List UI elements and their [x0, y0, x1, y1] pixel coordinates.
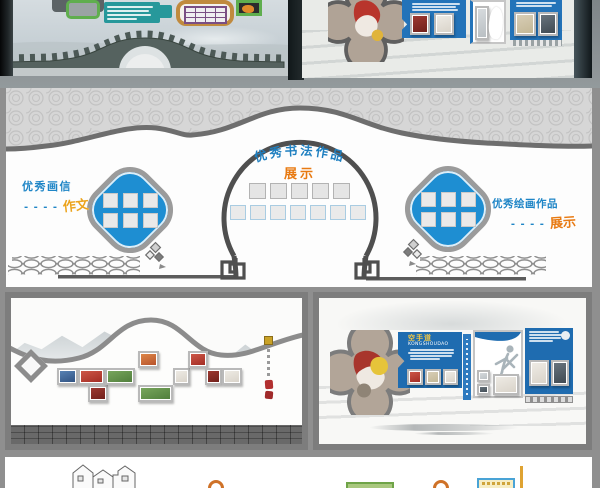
kick-display-panel [473, 330, 523, 398]
photo-thumb [407, 369, 423, 385]
photo-thumb [105, 368, 135, 385]
orange-pole [520, 466, 523, 488]
karate-title: 空手道 [408, 335, 462, 342]
text-line [410, 358, 440, 360]
text-line [516, 2, 556, 4]
picture-frame-right-edge [574, 0, 592, 78]
picture-frame-left-edge [0, 0, 13, 76]
ink-brush-stroke [369, 424, 519, 431]
text-line [529, 340, 553, 342]
green-board [346, 482, 394, 488]
left-section-label: 优秀画信 - - - - 作文 [22, 180, 89, 215]
display-frame [291, 183, 308, 199]
display-frame [270, 205, 286, 220]
display-frame [290, 205, 306, 220]
photo-thumb [88, 385, 108, 402]
label-word: 作文 [62, 197, 90, 216]
main-wall-design-panel: 优秀书法作品 展示 优秀画信 - - - - [6, 88, 592, 287]
display-frame [330, 205, 346, 220]
teal-small-board [158, 5, 172, 18]
stone-bridge-icon [0, 18, 290, 76]
photo-thumb [78, 368, 105, 385]
photo-thumb [425, 369, 441, 385]
photo-thumb [551, 360, 569, 386]
film-perforation-strip [510, 40, 562, 46]
photo-thumb [205, 368, 222, 385]
text-line [410, 349, 454, 351]
photo-slot-grid [415, 176, 481, 242]
preview-bridge-wall [0, 0, 290, 76]
green-cartoon-box [236, 0, 262, 16]
text-line [412, 3, 460, 5]
display-frame [250, 205, 266, 220]
green-frame-box [66, 0, 100, 19]
label-line2: - - - - 作文 [24, 195, 89, 215]
display-frame [270, 183, 287, 199]
bottom-partial-preview [5, 457, 592, 488]
red-seal-marks [265, 391, 274, 400]
village-houses-sketch [71, 461, 141, 488]
photo-thumb [57, 368, 78, 385]
text-line [529, 331, 559, 333]
stamp-perforation-row [525, 396, 573, 403]
cutout-figure [487, 6, 505, 40]
text-line [412, 6, 456, 8]
photo-thumb [529, 360, 549, 386]
karate-banner: 空手道 KONGSHOUDAO [398, 332, 462, 388]
text-line [408, 352, 454, 354]
brick-base [11, 425, 302, 444]
orange-circle-ornament [433, 480, 449, 488]
quatrefoil-photo-frame [328, 0, 404, 62]
ink-brush-stroke [414, 432, 494, 435]
vertical-text-marks [466, 339, 468, 395]
text-line [412, 9, 458, 11]
vertical-calligraphy [263, 336, 275, 402]
karate-subtitle: KONGSHOUDAO [408, 342, 462, 347]
text-line [410, 355, 452, 357]
photo-thumb [188, 351, 208, 368]
label-line1: 优秀绘画作品 [492, 198, 590, 211]
text-dashes [482, 482, 510, 485]
label-word: 展示 [549, 215, 576, 233]
orange-circle-ornament [208, 480, 224, 488]
display-frame [350, 205, 366, 220]
karate-panel-right [525, 328, 573, 394]
calligraphy-subtitle: 展示 [276, 167, 324, 183]
text-line [107, 6, 153, 8]
photo-thumb [514, 12, 536, 36]
cartoon-blob [242, 5, 254, 13]
photo-thumb [138, 385, 173, 402]
label-dashes: - - - - [24, 202, 58, 213]
display-frame [333, 183, 350, 199]
text-line [516, 5, 552, 7]
photo-thumb [173, 368, 190, 385]
label-dashes: - - - - [511, 219, 545, 230]
photo-thumb [477, 370, 490, 382]
display-frame [312, 183, 329, 199]
text-line [107, 10, 149, 12]
preview-karate-wall-top [302, 0, 592, 78]
label-line1: 优秀画信 [22, 180, 89, 194]
text-line [529, 334, 563, 336]
display-frame [310, 205, 326, 220]
photo-thumb [538, 12, 558, 36]
label-line2: - - - - 展示 [492, 212, 590, 232]
photo-thumb [434, 13, 454, 35]
diamond-ornament-left [146, 243, 166, 269]
diamond-ornament-right [404, 240, 421, 266]
preview-sports-photo-wall [5, 292, 308, 450]
photo-thumb [477, 384, 490, 395]
text-line [529, 337, 561, 339]
ink-wash [334, 300, 569, 330]
preview-karate-wall-bottom: 空手道 KONGSHOUDAO [313, 292, 592, 450]
calligraphy-arc-title: 优秀书法作品 [253, 143, 348, 165]
display-frame [230, 205, 246, 220]
gray-text-marks [267, 348, 270, 376]
blue-notice-board [477, 478, 515, 488]
text-line [107, 14, 151, 16]
photo-thumb [222, 368, 242, 385]
photo-thumb [443, 369, 458, 385]
karate-banner-top [402, 0, 466, 38]
right-section-label: 优秀绘画作品 - - - - 展示 [492, 198, 590, 232]
culture-wall-design-collage: 优秀书法作品 展示 优秀画信 - - - - [0, 0, 600, 488]
garden-wall-curve [11, 298, 302, 444]
top-preview-shelf [0, 0, 600, 88]
vertical-divider-strip [463, 334, 471, 400]
gold-seal [264, 336, 273, 345]
photo-thumb [493, 374, 519, 395]
display-frame [249, 183, 266, 199]
photo-thumb [410, 13, 430, 35]
karate-panel-right-top [510, 0, 562, 40]
white-display-panel [470, 0, 506, 44]
photo-thumb [138, 351, 159, 368]
red-seal-marks [265, 380, 274, 390]
round-badge [561, 331, 570, 340]
photo-slot-grid [97, 177, 163, 243]
photo-thumb [475, 6, 489, 40]
